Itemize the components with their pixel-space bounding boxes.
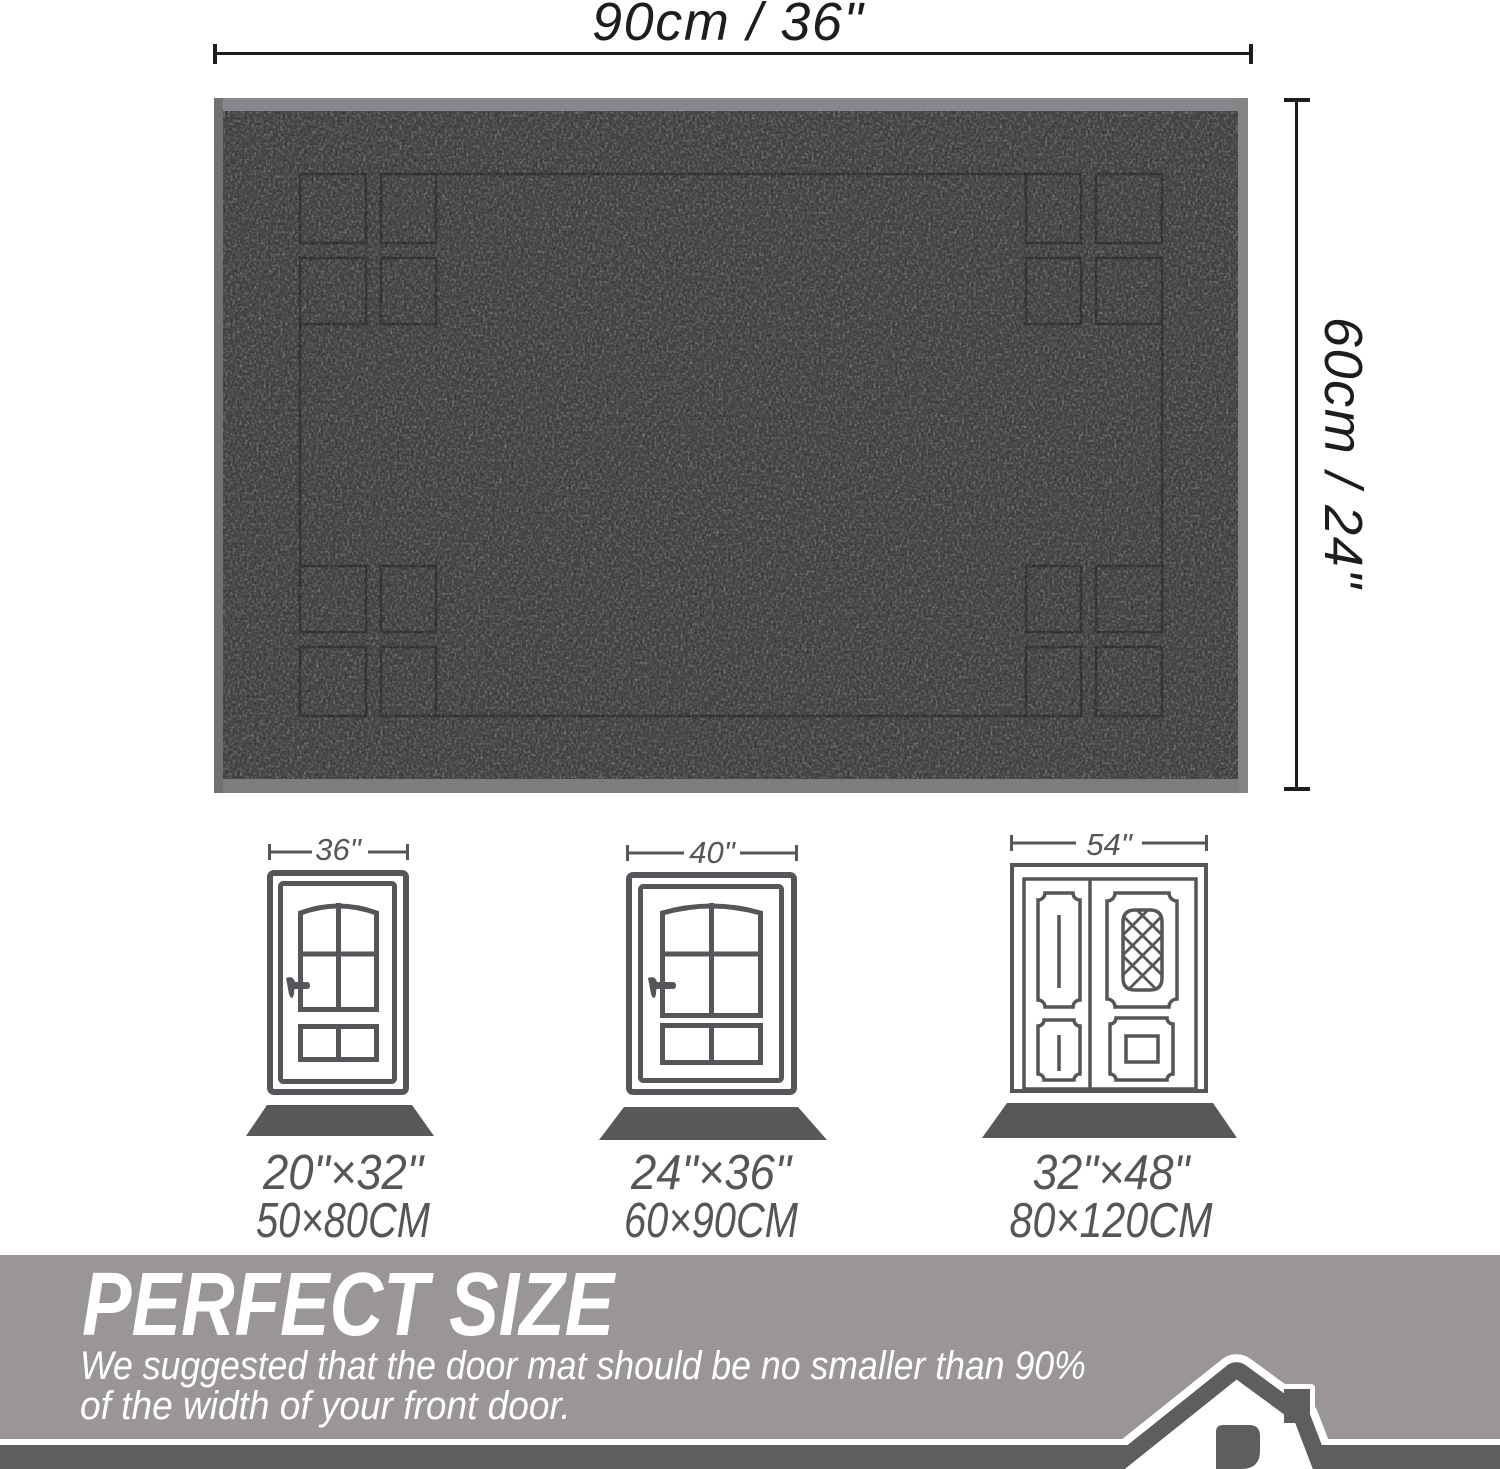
svg-text:54": 54" <box>1086 827 1133 862</box>
svg-text:36": 36" <box>315 836 362 867</box>
svg-text:40": 40" <box>689 836 736 870</box>
